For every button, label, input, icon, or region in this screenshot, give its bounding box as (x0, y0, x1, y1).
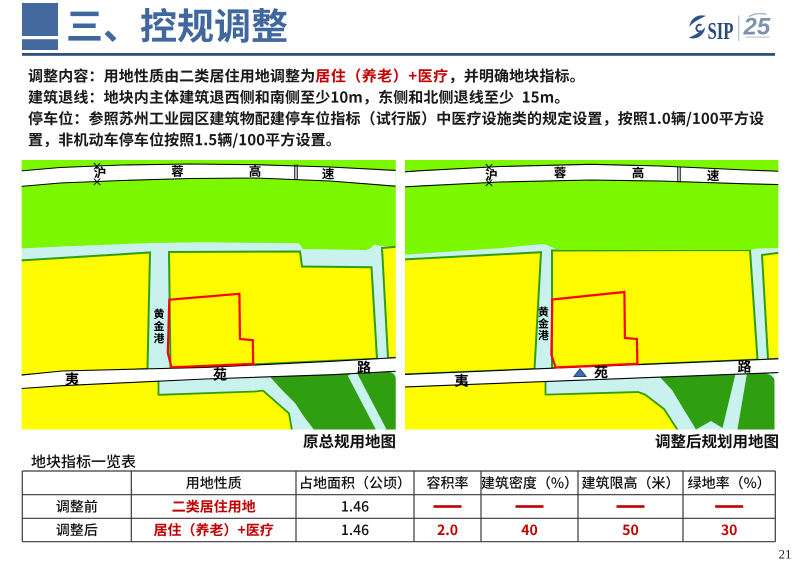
svg-text:SIP: SIP (708, 19, 734, 45)
svg-text:25: 25 (743, 14, 771, 41)
svg-text:21: 21 (779, 547, 792, 562)
